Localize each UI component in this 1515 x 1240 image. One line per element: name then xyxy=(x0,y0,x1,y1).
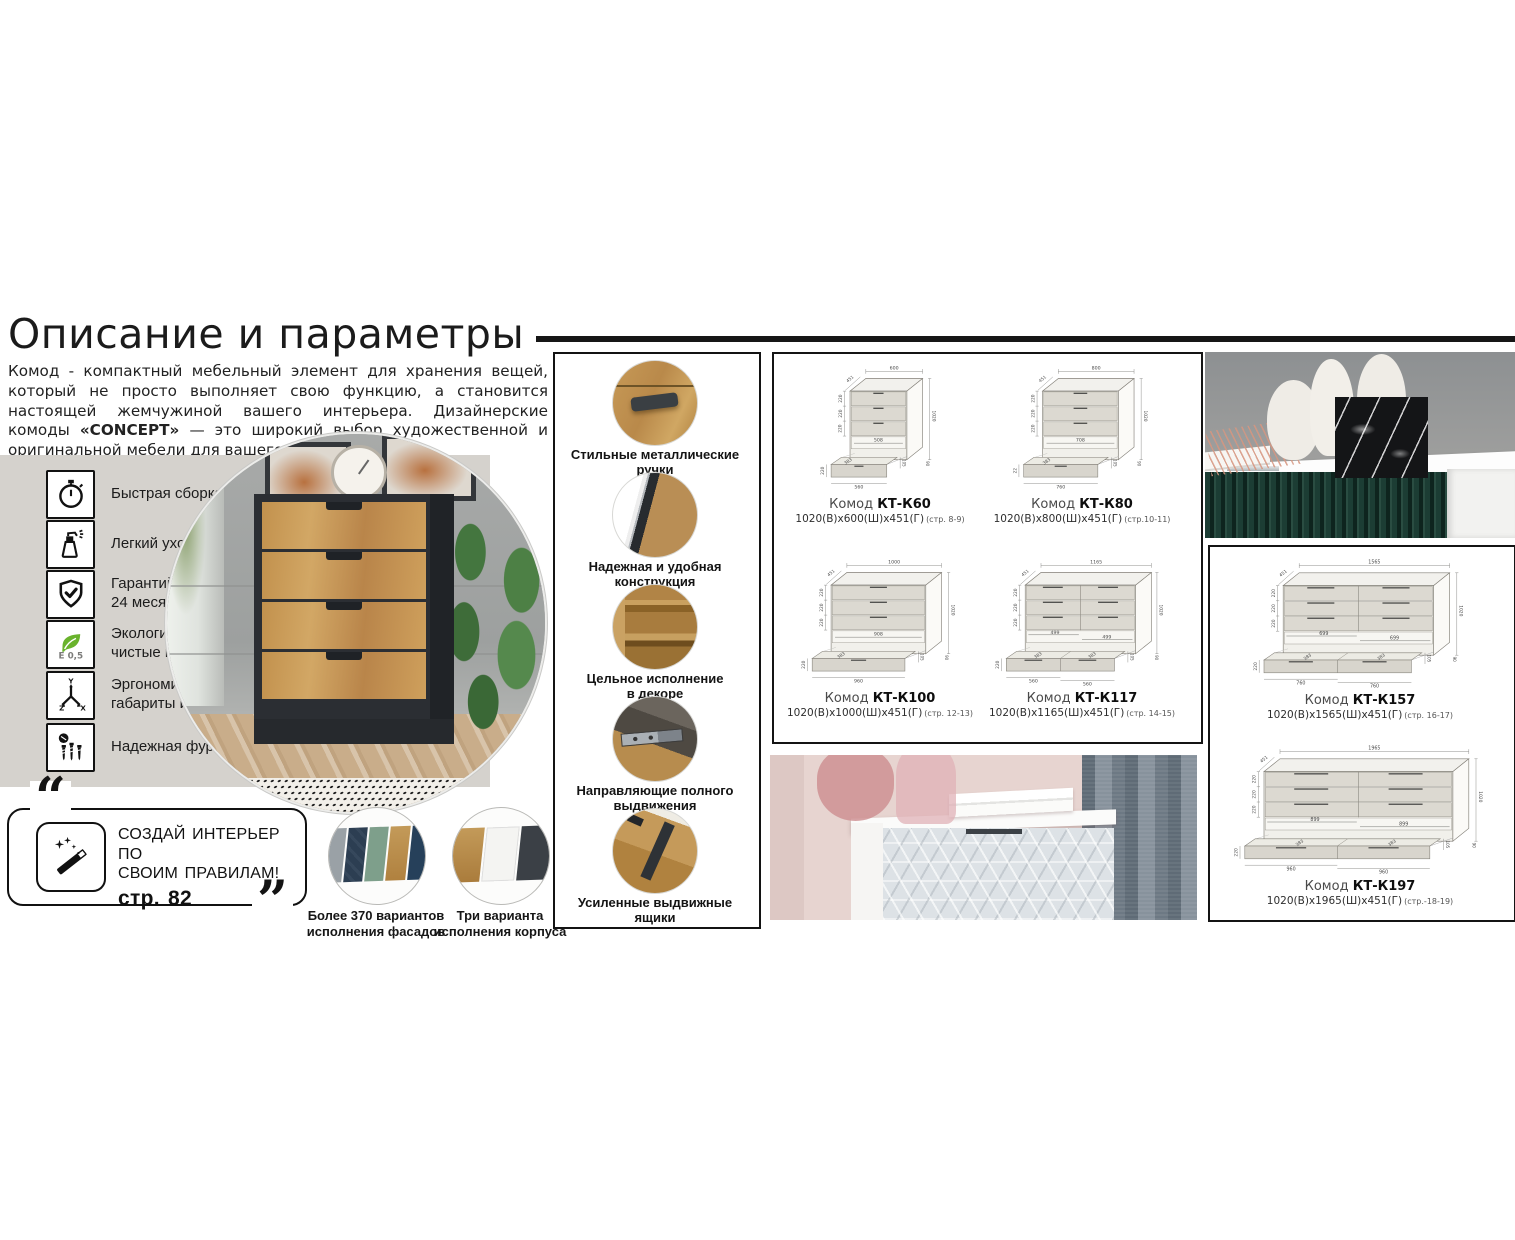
svg-text:Y: Y xyxy=(67,678,74,686)
drawing-title: Комод КТ-К100 xyxy=(780,691,980,706)
svg-text:90: 90 xyxy=(1154,655,1159,661)
drawing-dims: 1020(В)х800(Ш)х451(Г)(стр.10-11) xyxy=(982,513,1182,525)
clock xyxy=(331,445,386,500)
drawing-title: Комод КТ-К60 xyxy=(780,497,980,512)
svg-text:1020: 1020 xyxy=(1142,410,1148,421)
stopwatch-icon xyxy=(46,470,95,519)
tech-drawing-kt-k80: 70880045110202202202207603831059022 xyxy=(982,358,1182,496)
svg-text:908: 908 xyxy=(874,632,883,638)
svg-text:220: 220 xyxy=(1252,775,1258,784)
svg-text:105: 105 xyxy=(1113,459,1118,467)
svg-text:1565: 1565 xyxy=(1368,560,1380,566)
detail-photo-drawers xyxy=(612,808,698,894)
svg-text:Z: Z xyxy=(59,703,64,712)
svg-text:960: 960 xyxy=(854,679,863,685)
svg-text:E 0,5: E 0,5 xyxy=(58,652,83,661)
svg-text:90: 90 xyxy=(944,655,949,661)
svg-text:220: 220 xyxy=(1252,805,1258,814)
svg-text:220: 220 xyxy=(1271,604,1277,613)
title-row: Описание и параметры xyxy=(8,314,1515,355)
svg-text:960: 960 xyxy=(1286,866,1295,872)
svg-text:220: 220 xyxy=(1013,603,1019,612)
tech-drawing-kt-k117: 4994991165451102022022022056056038338310… xyxy=(982,552,1182,690)
svg-text:699: 699 xyxy=(1319,631,1328,637)
drawing-dims: 1020(В)х1965(Ш)х451(Г)(стр.-18-19) xyxy=(1212,895,1508,907)
svg-text:899: 899 xyxy=(1399,822,1408,828)
svg-text:220: 220 xyxy=(1252,790,1258,799)
svg-text:499: 499 xyxy=(1102,634,1111,640)
promo-line1: СОЗДАЙ ИНТЕРЬЕР ПО xyxy=(118,825,308,864)
svg-text:760: 760 xyxy=(1296,680,1305,686)
svg-text:X: X xyxy=(80,703,86,712)
svg-text:22: 22 xyxy=(1013,468,1019,474)
drawing-kt-k117: 4994991165451102022022022056056038338310… xyxy=(982,552,1182,719)
svg-text:1000: 1000 xyxy=(888,559,900,565)
magic-wand-icon xyxy=(36,822,106,892)
svg-text:220: 220 xyxy=(819,618,825,627)
svg-text:220: 220 xyxy=(1013,588,1019,597)
svg-text:220: 220 xyxy=(1013,618,1019,627)
drawing-kt-k157: 6996991565451102022022022076076038338310… xyxy=(1212,552,1508,721)
photo-window xyxy=(167,434,224,706)
svg-text:708: 708 xyxy=(1076,438,1085,444)
svg-text:899: 899 xyxy=(1310,817,1319,823)
dresser-side xyxy=(851,823,883,920)
drawer xyxy=(262,502,426,549)
photo-rug xyxy=(179,778,472,812)
tech-drawing-kt-k157: 6996991565451102022022022076076038338310… xyxy=(1214,552,1506,692)
svg-text:760: 760 xyxy=(1370,684,1379,690)
svg-text:90: 90 xyxy=(1471,843,1476,849)
svg-text:508: 508 xyxy=(874,438,883,444)
svg-text:960: 960 xyxy=(1379,870,1388,876)
pink-vase xyxy=(896,755,956,824)
open-quote-icon: “ xyxy=(30,781,71,813)
drawing-title: Комод КТ-К80 xyxy=(982,497,1182,512)
detail-caption: Усиленные выдвижныеящики xyxy=(553,895,757,926)
detail-photo-handles xyxy=(612,360,698,446)
body-swatches xyxy=(452,825,550,883)
promo-line2: СВОИМ ПРАВИЛАМ! xyxy=(118,864,308,884)
svg-text:220: 220 xyxy=(801,660,807,669)
svg-text:560: 560 xyxy=(1029,679,1038,685)
svg-text:90: 90 xyxy=(1137,461,1142,467)
svg-text:560: 560 xyxy=(1083,682,1092,688)
svg-text:1020: 1020 xyxy=(1458,605,1464,616)
drawing-title: Комод КТ-К117 xyxy=(982,691,1182,706)
svg-text:220: 220 xyxy=(819,588,825,597)
drawing-kt-k197: 8998991965451102022022022096096038338310… xyxy=(1212,738,1508,907)
svg-text:1165: 1165 xyxy=(1090,559,1102,565)
promo-text: СОЗДАЙ ИНТЕРЬЕР ПО СВОИМ ПРАВИЛАМ! стр. … xyxy=(118,825,308,911)
drawing-title: Комод КТ-К197 xyxy=(1212,879,1508,894)
svg-text:220: 220 xyxy=(838,409,844,418)
drawing-dims: 1020(В)х1565(Ш)х451(Г)(стр. 16-17) xyxy=(1212,709,1508,721)
svg-text:220: 220 xyxy=(1030,424,1036,433)
svg-text:220: 220 xyxy=(820,466,826,475)
svg-text:600: 600 xyxy=(890,365,899,371)
svg-text:220: 220 xyxy=(1271,619,1277,628)
promo-page-ref: стр. 82 xyxy=(118,886,308,912)
svg-text:105: 105 xyxy=(1129,653,1134,661)
tech-drawing-kt-k60: 508600451102022022022056038310590220 xyxy=(780,358,980,496)
sideboard-side xyxy=(1447,469,1515,538)
svg-text:1020: 1020 xyxy=(949,604,955,615)
svg-text:560: 560 xyxy=(854,485,863,491)
svg-text:105: 105 xyxy=(1445,841,1450,849)
facade-swatches xyxy=(328,825,426,883)
tech-drawing-kt-k100: 9081000451102022022022096038310590220 xyxy=(780,552,980,690)
photo-white-dresser xyxy=(770,755,1197,920)
drawing-dims: 1020(В)х1000(Ш)х451(Г)(стр. 12-13) xyxy=(780,707,980,719)
svg-text:220: 220 xyxy=(1271,589,1277,598)
drawing-dims: 1020(В)х1165(Ш)х451(Г)(стр. 14-15) xyxy=(982,707,1182,719)
svg-text:760: 760 xyxy=(1056,485,1065,491)
svg-text:105: 105 xyxy=(920,653,925,661)
svg-text:1020: 1020 xyxy=(930,410,936,421)
svg-text:800: 800 xyxy=(1092,365,1101,371)
svg-text:220: 220 xyxy=(995,660,1001,669)
svg-text:90: 90 xyxy=(1452,657,1457,663)
svg-text:220: 220 xyxy=(1234,848,1240,857)
drawer xyxy=(262,652,426,699)
shield-check-icon xyxy=(46,570,95,619)
drawing-kt-k80: 70880045110202202202207603831059022 Комо… xyxy=(982,358,1182,525)
marble-box xyxy=(1335,397,1428,479)
svg-text:1020: 1020 xyxy=(1477,791,1483,802)
drawing-kt-k100: 9081000451102022022022096038310590220 Ко… xyxy=(780,552,980,719)
drawer xyxy=(262,552,426,599)
photo-green-sideboard xyxy=(1205,352,1515,538)
detail-photo-decor xyxy=(612,584,698,670)
hero-photo-dresser xyxy=(167,434,545,812)
brand-name: «CONCEPT» xyxy=(80,421,179,439)
dresser-product xyxy=(254,494,454,743)
drawer xyxy=(262,602,426,649)
detail-photo-construction xyxy=(612,472,698,558)
detail-photo-slides xyxy=(612,696,698,782)
drawing-dims: 1020(В)х600(Ш)х451(Г)(стр. 8-9) xyxy=(780,513,980,525)
drawing-kt-k60: 508600451102022022022056038310590220 Ком… xyxy=(780,358,980,525)
svg-text:220: 220 xyxy=(1030,394,1036,403)
svg-text:220: 220 xyxy=(838,394,844,403)
svg-text:220: 220 xyxy=(819,603,825,612)
body-variants-photo xyxy=(452,807,550,905)
dresser-handle xyxy=(966,829,1022,834)
dimensions-axes-icon: YZX xyxy=(46,671,95,720)
title-rule xyxy=(536,336,1515,342)
svg-text:220: 220 xyxy=(1030,409,1036,418)
svg-text:90: 90 xyxy=(925,461,930,467)
svg-text:1020: 1020 xyxy=(1158,604,1164,615)
svg-text:220: 220 xyxy=(838,424,844,433)
hexagon-front xyxy=(883,828,1114,920)
picture-frame xyxy=(382,434,475,501)
sideboard-fluted-front xyxy=(1205,472,1447,538)
svg-text:1965: 1965 xyxy=(1368,746,1380,752)
eco-leaf-icon: E 0,5 xyxy=(46,620,95,669)
tech-drawing-kt-k197: 8998991965451102022022022096096038338310… xyxy=(1214,738,1506,878)
spray-bottle-icon xyxy=(46,520,95,569)
pink-vase xyxy=(817,755,894,821)
svg-text:105: 105 xyxy=(902,459,907,467)
drawing-title: Комод КТ-К157 xyxy=(1212,693,1508,708)
svg-text:220: 220 xyxy=(1253,662,1259,671)
svg-text:499: 499 xyxy=(1051,630,1060,636)
svg-text:105: 105 xyxy=(1426,655,1431,663)
facade-variants-photo xyxy=(328,807,426,905)
page-title: Описание и параметры xyxy=(8,314,524,355)
svg-text:699: 699 xyxy=(1390,636,1399,642)
